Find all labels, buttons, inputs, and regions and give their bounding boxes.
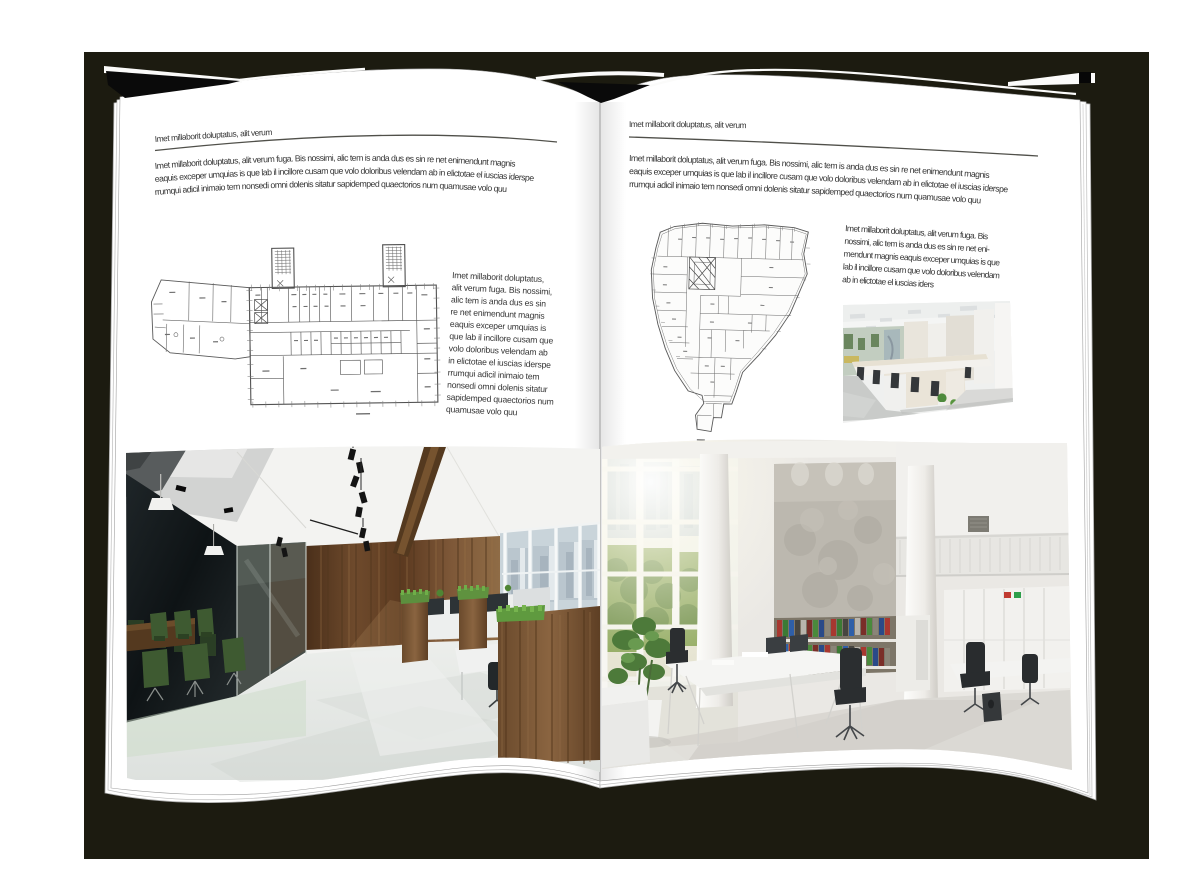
svg-text:Imet millaborit doluptatus, al: Imet millaborit doluptatus, alit verum bbox=[629, 119, 747, 130]
